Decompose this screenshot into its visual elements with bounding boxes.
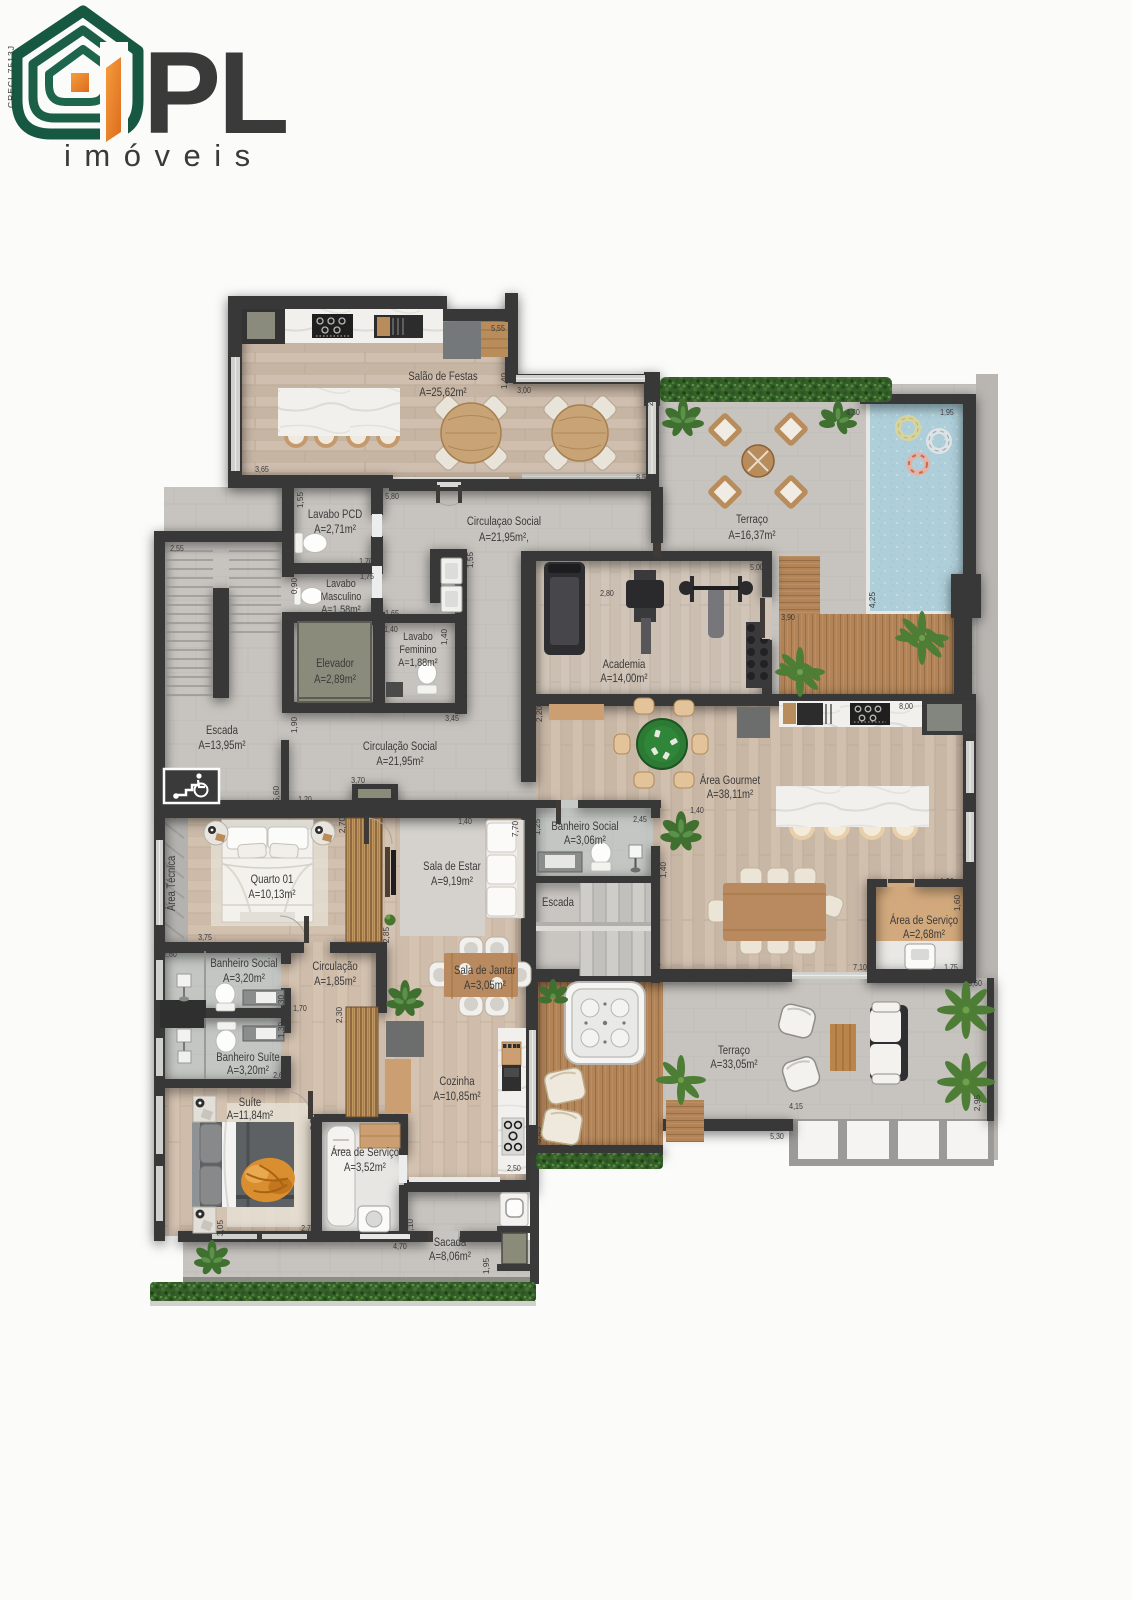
svg-text:Área de Serviço: Área de Serviço bbox=[331, 1145, 399, 1159]
svg-text:1,95: 1,95 bbox=[652, 954, 662, 971]
svg-text:0,90: 0,90 bbox=[289, 578, 299, 595]
svg-text:A=3,05m²: A=3,05m² bbox=[464, 979, 506, 992]
svg-text:A=8,06m²: A=8,06m² bbox=[429, 1250, 471, 1263]
svg-text:5,00: 5,00 bbox=[750, 562, 764, 572]
svg-text:Cozinha: Cozinha bbox=[439, 1075, 475, 1088]
svg-text:A=14,00m²: A=14,00m² bbox=[600, 672, 648, 685]
svg-text:Feminino: Feminino bbox=[399, 644, 436, 656]
svg-text:Escada: Escada bbox=[542, 896, 575, 909]
svg-text:3,90: 3,90 bbox=[781, 612, 795, 622]
svg-text:Lavabo: Lavabo bbox=[326, 578, 356, 590]
svg-text:Elevador: Elevador bbox=[316, 657, 354, 670]
svg-text:2,70: 2,70 bbox=[337, 817, 347, 834]
svg-text:1,40: 1,40 bbox=[384, 624, 398, 634]
svg-text:1,60: 1,60 bbox=[953, 658, 963, 675]
svg-text:3,45: 3,45 bbox=[533, 1127, 543, 1144]
svg-text:9,60: 9,60 bbox=[968, 978, 982, 988]
svg-text:A=3,52m²: A=3,52m² bbox=[344, 1161, 386, 1174]
svg-text:1,55: 1,55 bbox=[465, 552, 475, 569]
svg-text:1,40: 1,40 bbox=[499, 373, 509, 390]
svg-text:4,15: 4,15 bbox=[789, 1101, 803, 1111]
svg-text:A=16,37m²: A=16,37m² bbox=[728, 529, 776, 542]
svg-text:1,75: 1,75 bbox=[944, 962, 958, 972]
svg-text:Escada: Escada bbox=[206, 724, 239, 737]
svg-text:A=2,89m²: A=2,89m² bbox=[314, 673, 356, 686]
svg-text:1,95: 1,95 bbox=[940, 407, 954, 417]
svg-text:Banheiro Social: Banheiro Social bbox=[551, 820, 618, 833]
svg-text:3,70: 3,70 bbox=[351, 775, 365, 785]
svg-text:2,55: 2,55 bbox=[170, 543, 184, 553]
svg-text:Banheiro Social: Banheiro Social bbox=[210, 957, 277, 970]
svg-text:1,30: 1,30 bbox=[276, 1022, 286, 1039]
svg-text:2,95: 2,95 bbox=[972, 1095, 982, 1112]
svg-text:2,30: 2,30 bbox=[334, 1007, 344, 1024]
svg-text:3,65: 3,65 bbox=[255, 464, 269, 474]
svg-text:2,70: 2,70 bbox=[301, 1223, 315, 1233]
svg-text:Suíte: Suíte bbox=[239, 1096, 261, 1109]
svg-text:A=25,62m²: A=25,62m² bbox=[419, 386, 467, 399]
svg-text:2,05: 2,05 bbox=[645, 390, 655, 407]
svg-text:3,00: 3,00 bbox=[517, 385, 531, 395]
svg-text:5,60: 5,60 bbox=[271, 786, 281, 803]
svg-text:7,70: 7,70 bbox=[510, 821, 520, 838]
svg-text:1,30: 1,30 bbox=[276, 995, 286, 1012]
svg-text:5,55: 5,55 bbox=[491, 323, 505, 333]
svg-text:Sala de Estar: Sala de Estar bbox=[423, 860, 481, 873]
svg-text:2,20: 2,20 bbox=[534, 706, 544, 723]
svg-text:Salão de Festas: Salão de Festas bbox=[408, 370, 478, 383]
svg-text:1,40: 1,40 bbox=[439, 629, 449, 646]
svg-text:A=21,95m²,: A=21,95m², bbox=[479, 531, 529, 544]
svg-text:1,70: 1,70 bbox=[359, 556, 373, 566]
svg-text:A=3,06m²: A=3,06m² bbox=[564, 834, 606, 847]
svg-text:1,75: 1,75 bbox=[360, 571, 374, 581]
svg-text:1,95: 1,95 bbox=[481, 1258, 491, 1275]
svg-text:2,50: 2,50 bbox=[507, 1163, 521, 1173]
svg-text:Circulação Social: Circulação Social bbox=[363, 740, 437, 753]
svg-text:A=10,13m²: A=10,13m² bbox=[248, 888, 296, 901]
svg-text:Masculino: Masculino bbox=[321, 591, 362, 603]
svg-text:A=21,95m²: A=21,95m² bbox=[376, 755, 424, 768]
svg-text:A=9,19m²: A=9,19m² bbox=[431, 875, 473, 888]
svg-text:1,10: 1,10 bbox=[405, 1219, 415, 1236]
svg-text:CRECI 7513J: CRECI 7513J bbox=[6, 45, 16, 108]
svg-text:3,05: 3,05 bbox=[215, 1220, 225, 1237]
svg-text:Academia: Academia bbox=[603, 658, 647, 671]
svg-text:A=3,20m²: A=3,20m² bbox=[227, 1064, 269, 1077]
svg-text:Circulaçao Social: Circulaçao Social bbox=[467, 515, 541, 528]
svg-text:1,90: 1,90 bbox=[940, 876, 954, 886]
svg-text:Sacada: Sacada bbox=[434, 1236, 467, 1249]
svg-text:Área Gourmet: Área Gourmet bbox=[700, 773, 760, 787]
svg-text:Sala de Jantar: Sala de Jantar bbox=[454, 964, 516, 977]
svg-text:1,65: 1,65 bbox=[385, 608, 399, 618]
svg-text:Circulação: Circulação bbox=[312, 960, 357, 973]
svg-text:A=2,71m²: A=2,71m² bbox=[314, 523, 356, 536]
svg-text:5,80: 5,80 bbox=[385, 491, 399, 501]
svg-text:1,20: 1,20 bbox=[298, 794, 312, 804]
svg-text:Banheiro Suíte: Banheiro Suíte bbox=[216, 1051, 279, 1064]
svg-text:2,45: 2,45 bbox=[633, 814, 647, 824]
svg-text:1,70: 1,70 bbox=[293, 1003, 307, 1013]
svg-text:1,40: 1,40 bbox=[458, 816, 472, 826]
svg-text:3,45: 3,45 bbox=[445, 713, 459, 723]
svg-text:2,50: 2,50 bbox=[308, 1114, 318, 1131]
svg-text:A=11,84m²: A=11,84m² bbox=[227, 1109, 274, 1122]
svg-text:2,60: 2,60 bbox=[273, 1070, 287, 1080]
svg-text:1,60: 1,60 bbox=[952, 895, 962, 912]
svg-text:2,80: 2,80 bbox=[600, 588, 614, 598]
svg-text:3,75: 3,75 bbox=[198, 932, 212, 942]
svg-text:A=2,68m²: A=2,68m² bbox=[903, 928, 945, 941]
svg-text:A=13,95m²: A=13,95m² bbox=[198, 739, 246, 752]
svg-text:imóveis: imóveis bbox=[64, 138, 264, 173]
svg-text:0,70: 0,70 bbox=[170, 810, 184, 820]
svg-text:5,30: 5,30 bbox=[770, 1131, 784, 1141]
svg-text:1,40: 1,40 bbox=[690, 805, 704, 815]
svg-text:A=1,58m²: A=1,58m² bbox=[321, 604, 361, 616]
svg-text:A=33,05m²: A=33,05m² bbox=[710, 1058, 758, 1071]
svg-text:1,90: 1,90 bbox=[289, 717, 299, 734]
svg-text:4,30: 4,30 bbox=[846, 407, 860, 417]
svg-text:4,70: 4,70 bbox=[393, 1241, 407, 1251]
svg-text:Lavabo: Lavabo bbox=[403, 631, 433, 643]
svg-text:A=3,20m²: A=3,20m² bbox=[223, 972, 265, 985]
svg-text:Área Técnica: Área Técnica bbox=[164, 856, 178, 911]
svg-text:Terraço: Terraço bbox=[718, 1044, 750, 1057]
svg-text:7,10: 7,10 bbox=[853, 962, 867, 972]
svg-text:8,00: 8,00 bbox=[899, 701, 913, 711]
svg-text:1,90: 1,90 bbox=[454, 628, 464, 645]
svg-text:2,85: 2,85 bbox=[381, 927, 391, 944]
svg-text:A=10,85m²: A=10,85m² bbox=[433, 1090, 481, 1103]
svg-text:Quarto 01: Quarto 01 bbox=[251, 873, 294, 886]
svg-text:4,25: 4,25 bbox=[867, 592, 877, 609]
svg-text:A=38,11m²: A=38,11m² bbox=[707, 788, 754, 801]
svg-text:Área de Serviço: Área de Serviço bbox=[890, 913, 958, 927]
svg-text:A=1,85m²: A=1,85m² bbox=[314, 975, 356, 988]
svg-text:1,55: 1,55 bbox=[295, 492, 305, 509]
svg-text:Terraço: Terraço bbox=[736, 513, 768, 526]
svg-text:Lavabo PCD: Lavabo PCD bbox=[308, 508, 363, 521]
svg-text:A=1,88m²: A=1,88m² bbox=[398, 657, 438, 669]
svg-text:1,25: 1,25 bbox=[532, 819, 542, 836]
svg-text:8,55: 8,55 bbox=[636, 472, 650, 482]
svg-text:2,60: 2,60 bbox=[163, 949, 177, 959]
svg-text:1,40: 1,40 bbox=[658, 862, 668, 879]
